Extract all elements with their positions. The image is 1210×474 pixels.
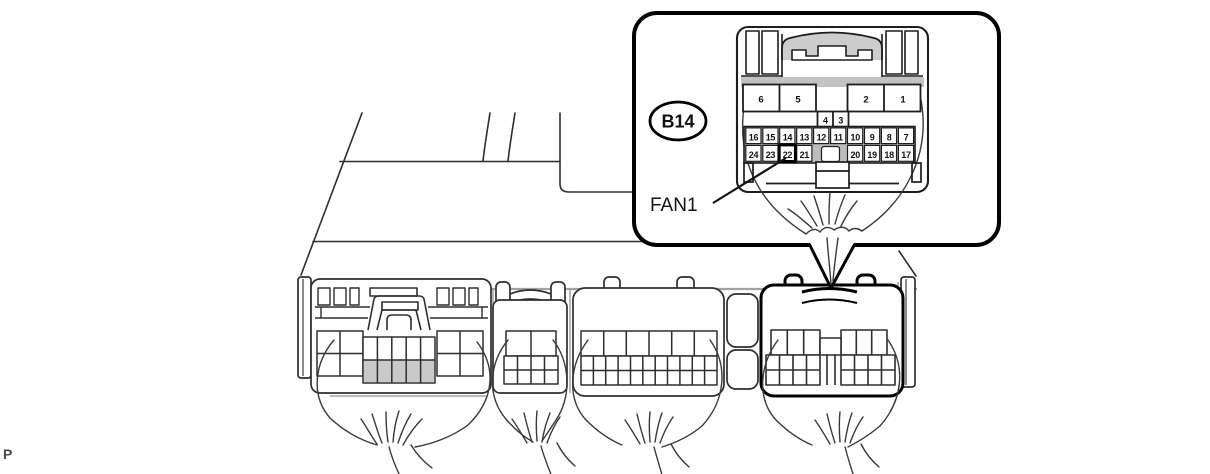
ecu-connector-b14 (761, 275, 903, 396)
balloon-pointer (810, 243, 854, 288)
connector-id-badge: B14 (650, 102, 706, 140)
pin-8-label: 8 (887, 133, 892, 143)
pin-21-label: 21 (800, 150, 810, 160)
pin-16-label: 16 (749, 133, 759, 143)
pin-11-label: 11 (834, 133, 843, 143)
pin-5-label: 5 (795, 95, 801, 106)
pin-6-label: 6 (758, 95, 763, 106)
connector-id-text: B14 (661, 112, 694, 132)
pin-1-label: 1 (900, 95, 906, 106)
pin-13-label: 13 (800, 133, 810, 143)
ecu-connector-3 (573, 277, 724, 396)
pin-18-label: 18 (884, 150, 894, 160)
connector-2-pin-grid (504, 331, 558, 384)
pin-24-label: 24 (749, 150, 759, 160)
band-left-endcap (298, 277, 311, 378)
pin-2-label: 2 (863, 95, 868, 106)
pin-9-label: 9 (870, 133, 875, 143)
ecu-connector-1 (311, 279, 491, 393)
connector-3-pin-grid (581, 331, 717, 385)
pin-17-label: 17 (901, 150, 911, 160)
callout-balloon: 6 5 2 1 4 3 16 15 14 13 12 11 10 9 8 7 2… (634, 13, 999, 288)
pin-15-label: 15 (766, 133, 776, 143)
connector-1-pin-grid (317, 331, 483, 383)
pin-20-label: 20 (850, 150, 860, 160)
pin-23-label: 23 (766, 150, 776, 160)
pin-14-label: 14 (783, 133, 793, 143)
pin-3-label: 3 (838, 116, 843, 126)
signal-label-text: FAN1 (650, 195, 698, 216)
ecu-blank-cavities (727, 294, 758, 389)
pin-12-label: 12 (817, 133, 827, 143)
wiring-diagram-svg: 6 5 2 1 4 3 16 15 14 13 12 11 10 9 8 7 2… (0, 0, 1210, 474)
pin-7-label: 7 (904, 133, 909, 143)
pin-19-label: 19 (867, 150, 877, 160)
ecu-connector-2 (493, 282, 567, 393)
page-marker: P (3, 446, 12, 462)
figure-canvas: 6 5 2 1 4 3 16 15 14 13 12 11 10 9 8 7 2… (0, 0, 1210, 474)
pin-4-label: 4 (823, 116, 828, 126)
pin-10-label: 10 (850, 133, 860, 143)
